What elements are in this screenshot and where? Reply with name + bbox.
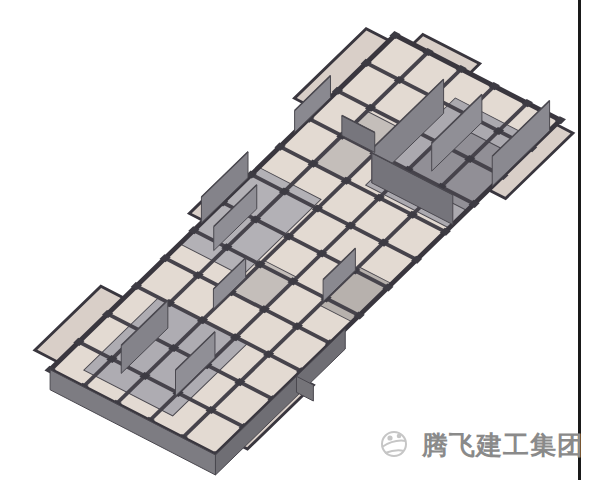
slab-iso-group <box>24 13 587 466</box>
company-logo-icon <box>376 427 412 463</box>
bim-model-3d <box>0 0 600 480</box>
right-border-line <box>578 0 581 480</box>
watermark-text: 腾飞建工集团 <box>422 427 584 463</box>
article-image: 腾飞建工集团 <box>0 0 600 480</box>
watermark: 腾飞建工集团 <box>376 427 584 463</box>
